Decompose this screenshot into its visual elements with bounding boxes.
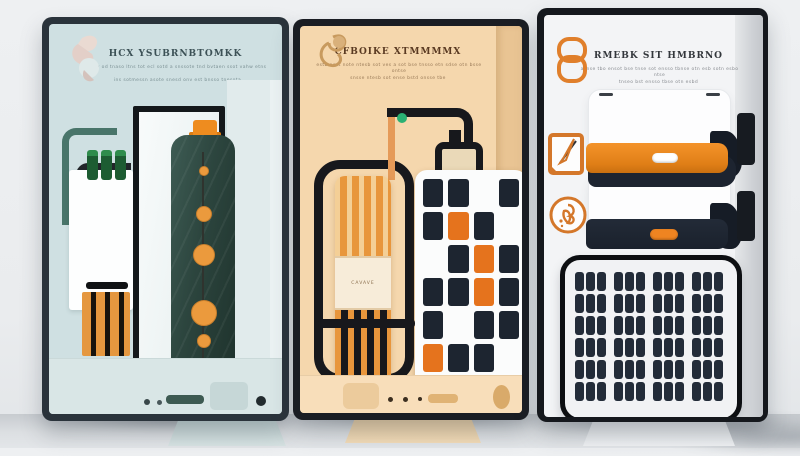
cell-battery-pack: [415, 170, 522, 402]
battery-cell: [423, 212, 443, 240]
striped-grille: [82, 292, 130, 356]
solar-row: [575, 382, 727, 401]
solar-cell: [675, 382, 684, 401]
solar-cell: [692, 316, 701, 335]
storage-cabinet: [69, 170, 133, 310]
battery-cell: [448, 245, 468, 273]
connector-node: [193, 244, 215, 266]
footer-button: [210, 382, 248, 410]
solar-row: [575, 360, 727, 379]
cylinder-logo-icon: [554, 35, 592, 89]
middle-poster-frame: CFBOIKE XTMMMMX estb aest note ntesb sot…: [293, 19, 529, 420]
solar-cell: [625, 338, 634, 357]
battery-cell: [474, 245, 494, 273]
solar-cell: [625, 382, 634, 401]
pen-icon: [546, 127, 586, 183]
battery-cell: [474, 212, 494, 240]
panel-subtitle: snsse ntesb sot ense bstd onsse tbe: [344, 76, 452, 82]
solar-cell: [714, 360, 723, 379]
solar-cell: [703, 316, 712, 335]
indicator-dot: [157, 400, 162, 405]
indicator-dot: [256, 396, 266, 406]
battery-cell: [423, 311, 443, 339]
solar-cell: [675, 338, 684, 357]
panel-stand: [168, 419, 286, 446]
cylinder-label: CAVAVE: [335, 256, 391, 310]
battery-cylinders: [87, 150, 126, 180]
solar-cell: [636, 360, 645, 379]
green-cylinder: [115, 150, 126, 180]
solar-cell: [703, 360, 712, 379]
solar-cell: [675, 316, 684, 335]
solar-cell: [653, 360, 662, 379]
solar-cell: [714, 294, 723, 313]
solar-cell: [703, 272, 712, 291]
green-indicator-dot: [397, 113, 407, 123]
solar-cell: [675, 360, 684, 379]
wall-panel-highlight: [270, 80, 282, 382]
green-cylinder: [101, 150, 112, 180]
solar-cell: [703, 338, 712, 357]
battery-cell: [499, 278, 519, 306]
solar-cell: [692, 294, 701, 313]
solar-cell: [586, 316, 595, 335]
battery-cell: [474, 278, 494, 306]
battery-cell: [448, 311, 468, 339]
solar-cell: [703, 382, 712, 401]
solar-cell: [653, 382, 662, 401]
solar-cell: [653, 316, 662, 335]
solar-row: [575, 316, 727, 335]
panel-subtitle: ins sotmessn asote snesd onv est bnsso t…: [109, 78, 246, 84]
solar-cell: [664, 360, 673, 379]
connector-node: [199, 166, 209, 176]
solar-cell: [575, 294, 584, 313]
solar-cell: [597, 316, 606, 335]
battery-cell: [474, 311, 494, 339]
solar-cell: [714, 338, 723, 357]
swirl-logo-icon: [62, 30, 108, 86]
solar-cell: [586, 360, 595, 379]
middle-poster-screen: CFBOIKE XTMMMMX estb aest note ntesb sot…: [300, 26, 522, 413]
solar-cell: [586, 294, 595, 313]
solar-cell: [614, 316, 623, 335]
battery-cell: [499, 344, 519, 372]
solar-cell: [586, 338, 595, 357]
solar-cell: [614, 360, 623, 379]
battery-cell: [423, 344, 443, 372]
battery-cell: [448, 212, 468, 240]
right-poster-screen: RMEBK SIT HMBRNO asnse tbo ensot bse tns…: [544, 15, 763, 417]
side-handle: [737, 113, 755, 165]
solar-cell: [692, 382, 701, 401]
indicator-dash: [428, 394, 458, 403]
right-poster-frame: RMEBK SIT HMBRNO asnse tbo ensot bse tns…: [537, 8, 768, 422]
solar-cell-grid: [575, 272, 727, 401]
indicator-dot: [418, 397, 422, 401]
illustration-stage: HCX YSUBRNBTOMKK btsv od tnaso ltns tot …: [0, 0, 800, 448]
solar-cell: [675, 272, 684, 291]
solar-cell: [653, 294, 662, 313]
indicator-dot: [388, 397, 393, 402]
solar-cell: [664, 272, 673, 291]
battery-cell: [423, 278, 443, 306]
solar-cell: [636, 316, 645, 335]
battery-cell: [499, 311, 519, 339]
solar-row: [575, 272, 727, 291]
bloom-icon: [548, 193, 588, 239]
solar-cell: [575, 360, 584, 379]
orange-module-bar: [586, 143, 740, 189]
indicator-dot: [403, 397, 408, 402]
navy-module-bar: [586, 215, 740, 259]
connector-node: [197, 334, 211, 348]
footer-button: [343, 383, 379, 409]
battery-cell: [448, 344, 468, 372]
solar-cell: [597, 338, 606, 357]
left-poster-frame: HCX YSUBRNBTOMKK btsv od tnaso ltns tot …: [42, 17, 289, 421]
solar-cell: [575, 382, 584, 401]
battery-cell: [448, 278, 468, 306]
panel-title: RMEBK SIT HMBRNO: [578, 51, 739, 61]
panel-stand: [583, 419, 735, 446]
solar-cell: [703, 294, 712, 313]
battery-cell: [499, 245, 519, 273]
solar-cell: [636, 382, 645, 401]
solar-cell: [597, 360, 606, 379]
panel-stand: [345, 416, 481, 443]
solar-cell: [614, 382, 623, 401]
panel-subtitle: btsv od tnaso ltns tot ecl sotd a snssot…: [85, 65, 270, 71]
solar-cell: [653, 272, 662, 291]
striped-battery-cylinder: CAVAVE: [335, 176, 391, 388]
solar-cell: [614, 338, 623, 357]
orange-pipe: [388, 117, 395, 180]
panel-subtitle: tnseo bst ensso tbse otn esbd: [610, 80, 707, 86]
solar-cell: [664, 338, 673, 357]
solar-cell: [664, 316, 673, 335]
solar-cell: [597, 272, 606, 291]
solar-cell: [575, 272, 584, 291]
solar-cell: [692, 360, 701, 379]
solar-cell: [636, 294, 645, 313]
solar-cell: [597, 382, 606, 401]
solar-cell: [675, 294, 684, 313]
solar-cell: [597, 294, 606, 313]
battery-cell-grid: [423, 179, 519, 372]
battery-cell: [423, 245, 443, 273]
green-cylinder: [87, 150, 98, 180]
battery-cell: [474, 179, 494, 207]
solar-cell: [692, 338, 701, 357]
swirl-logo-icon: [309, 31, 353, 81]
solar-cell: [625, 272, 634, 291]
solar-cell: [625, 316, 634, 335]
solar-cell: [714, 272, 723, 291]
solar-cell: [625, 294, 634, 313]
battery-cell: [448, 179, 468, 207]
solar-panel: [560, 255, 742, 417]
footer-strip: [300, 375, 522, 413]
card-tick: [599, 93, 613, 96]
solar-cell: [586, 382, 595, 401]
circuit-cross-line: [318, 319, 415, 328]
solar-cell: [664, 294, 673, 313]
solar-row: [575, 338, 727, 357]
solar-row: [575, 294, 727, 313]
pill-button: [652, 153, 678, 163]
solar-cell: [586, 272, 595, 291]
battery-cell: [423, 179, 443, 207]
side-handle: [737, 191, 755, 241]
solar-cell: [575, 338, 584, 357]
battery-cell: [474, 344, 494, 372]
footer-knob: [493, 385, 510, 409]
solar-cell: [636, 338, 645, 357]
pill-button: [650, 229, 678, 240]
battery-cell: [499, 212, 519, 240]
solar-cell: [714, 382, 723, 401]
solar-cell: [575, 316, 584, 335]
solar-cell: [692, 272, 701, 291]
solar-cell: [664, 382, 673, 401]
cylinder-stripes-top: [335, 176, 391, 256]
panel-subtitle: asnse tbo ensot bse tnse sot ensso tbnse…: [580, 67, 739, 79]
solar-cell: [625, 360, 634, 379]
connector-node: [191, 300, 217, 326]
solar-cell: [714, 316, 723, 335]
connector-node: [196, 206, 212, 222]
card-tick: [706, 93, 720, 96]
grille-cap: [86, 282, 128, 289]
indicator-dot: [144, 399, 150, 405]
solar-cell: [636, 272, 645, 291]
solar-cell: [614, 272, 623, 291]
indicator-dash: [166, 395, 204, 404]
battery-cell: [499, 179, 519, 207]
left-poster-screen: HCX YSUBRNBTOMKK btsv od tnaso ltns tot …: [49, 24, 282, 414]
solar-cell: [614, 294, 623, 313]
solar-cell: [653, 338, 662, 357]
